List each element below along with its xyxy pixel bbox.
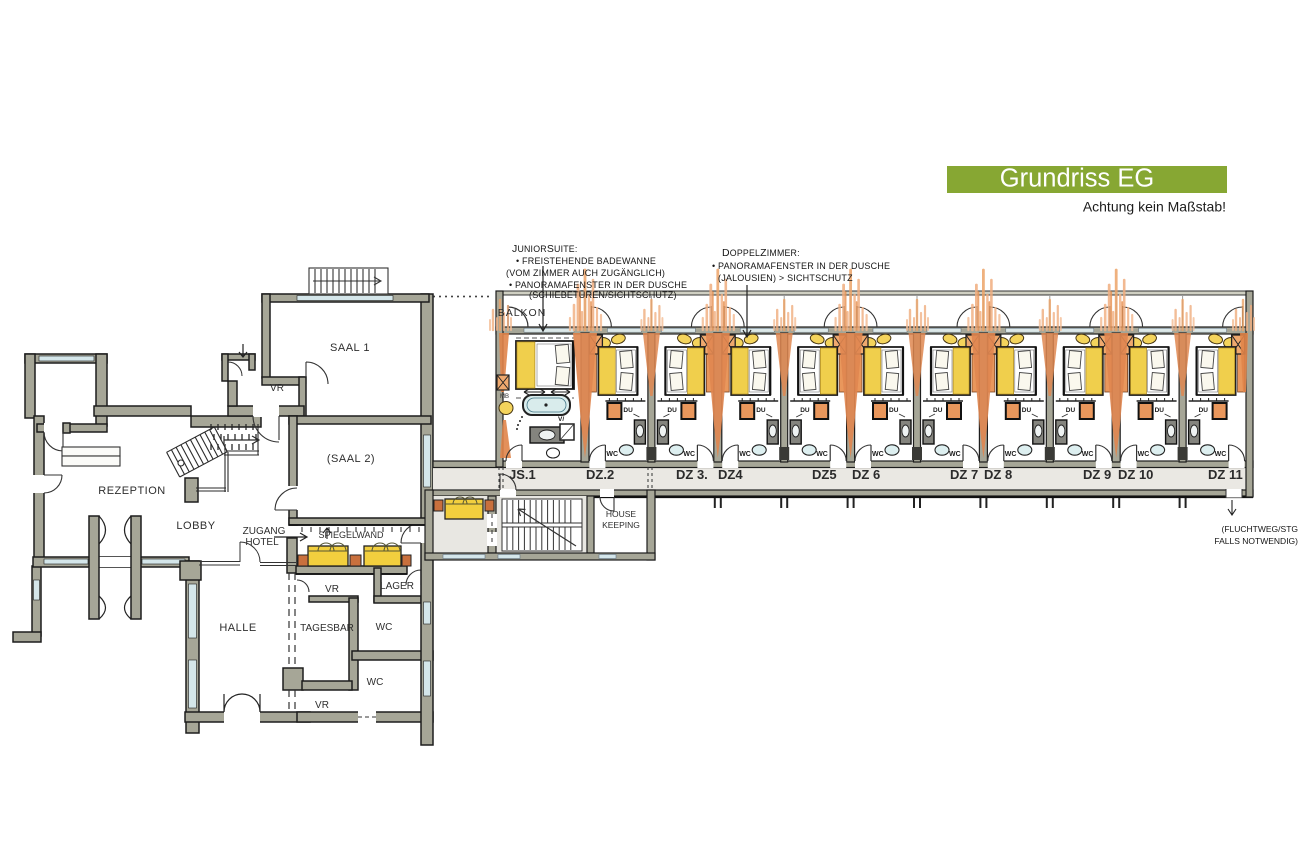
- svg-text:Grundriss EG: Grundriss EG: [1000, 165, 1154, 193]
- svg-text:DZ 9: DZ 9: [1083, 467, 1111, 482]
- svg-text:• PANORAMAFENSTER IN DER DUSCH: • PANORAMAFENSTER IN DER DUSCHE: [509, 280, 687, 290]
- svg-text:VR: VR: [315, 700, 329, 711]
- svg-text:HALLE: HALLE: [219, 622, 256, 634]
- svg-text:• PANORAMAFENSTER IN DER DUSCH: • PANORAMAFENSTER IN DER DUSCHE: [712, 261, 890, 271]
- svg-text:DZ5: DZ5: [812, 467, 837, 482]
- svg-text:WC: WC: [376, 622, 393, 633]
- svg-text:DZ.2: DZ.2: [586, 467, 614, 482]
- svg-text:DZ 8: DZ 8: [984, 467, 1012, 482]
- svg-text:KEEPING: KEEPING: [602, 520, 640, 530]
- svg-text:SPIEGELWAND: SPIEGELWAND: [318, 530, 384, 540]
- svg-text:ZUGANG: ZUGANG: [243, 526, 286, 537]
- svg-text:DZ 10: DZ 10: [1118, 467, 1153, 482]
- svg-text:(SAAL 2): (SAAL 2): [327, 453, 375, 465]
- svg-text:FALLS NOTWENDIG): FALLS NOTWENDIG): [1214, 536, 1298, 546]
- svg-text:DZ 6: DZ 6: [852, 467, 880, 482]
- svg-text:DZ 3.: DZ 3.: [676, 467, 708, 482]
- svg-text:HOTEL: HOTEL: [245, 537, 279, 548]
- svg-text:• FREISTEHENDE BADEWANNE: • FREISTEHENDE BADEWANNE: [516, 256, 656, 266]
- svg-text:DOPPELZIMMER:: DOPPELZIMMER:: [722, 247, 800, 259]
- svg-text:(FLUCHTWEG/STG: (FLUCHTWEG/STG: [1222, 524, 1299, 534]
- svg-text:(SCHIEBETÜREN/SICHTSCHUTZ): (SCHIEBETÜREN/SICHTSCHUTZ): [529, 290, 677, 300]
- svg-text:TAGESBAR: TAGESBAR: [300, 623, 354, 634]
- svg-text:BALKON: BALKON: [498, 307, 547, 319]
- svg-text:LAGER: LAGER: [380, 581, 414, 592]
- svg-text:HOUSE: HOUSE: [606, 509, 637, 519]
- svg-text:SAAL 1: SAAL 1: [330, 342, 370, 354]
- svg-text:(JALOUSIEN) > SICHTSCHUTZ: (JALOUSIEN) > SICHTSCHUTZ: [718, 273, 853, 283]
- svg-text:Achtung kein Maßstab!: Achtung kein Maßstab!: [1083, 199, 1226, 215]
- svg-text:VR: VR: [325, 584, 339, 595]
- svg-text:DZ4: DZ4: [718, 467, 743, 482]
- svg-text:JS.1: JS.1: [509, 467, 536, 482]
- svg-text:MB: MB: [500, 394, 509, 400]
- svg-text:DZ 7: DZ 7: [950, 467, 978, 482]
- svg-text:(VOM ZIMMER AUCH ZUGÄNGLICH): (VOM ZIMMER AUCH ZUGÄNGLICH): [506, 268, 665, 278]
- svg-text:VR: VR: [270, 383, 284, 394]
- svg-text:JUNIORSUITE:: JUNIORSUITE:: [512, 243, 578, 255]
- svg-text:DZ 11: DZ 11: [1208, 467, 1243, 482]
- svg-text:V/: V/: [558, 416, 564, 423]
- svg-text:WC: WC: [367, 677, 384, 688]
- svg-text:REZEPTION: REZEPTION: [98, 485, 165, 497]
- svg-text:LOBBY: LOBBY: [176, 520, 215, 532]
